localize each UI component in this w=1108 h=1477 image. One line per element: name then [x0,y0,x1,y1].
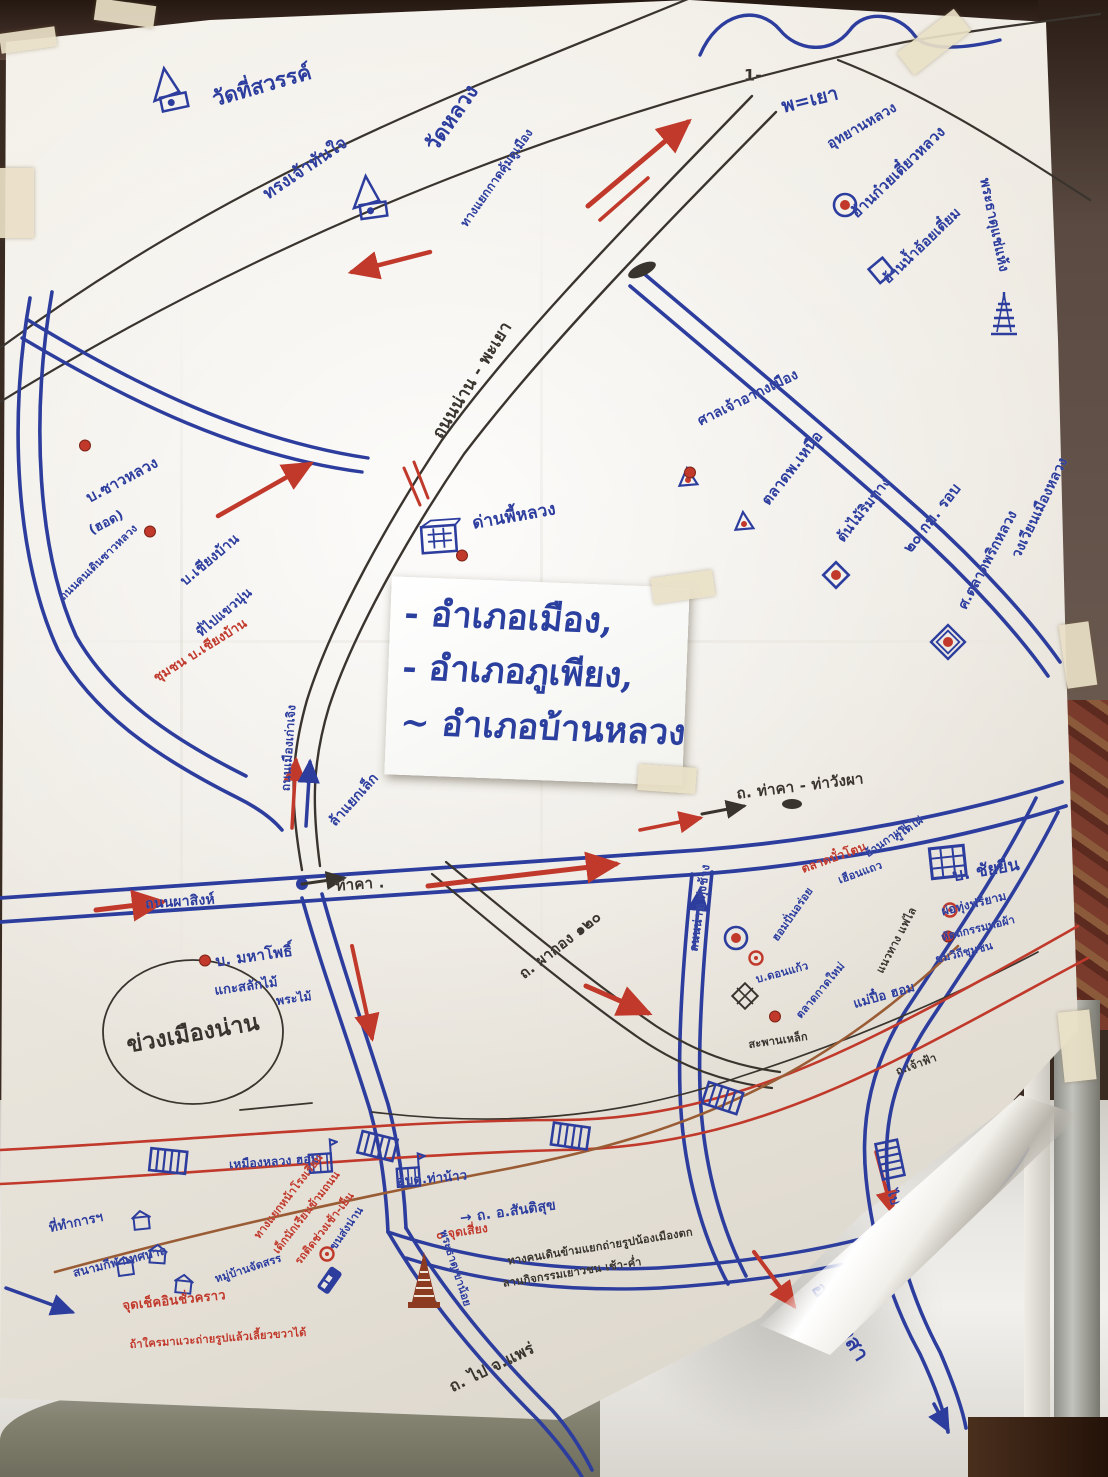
map-label: บ.เชียงบ้าน [175,529,244,592]
map-label: วัดที่สวรรค์ [208,56,315,116]
tape [0,168,34,238]
map-label: ท่าคา . [335,870,385,897]
map-label: ข่วงเมืองน่าน [124,1005,263,1064]
map-label: ล้าแยกเล็ก [324,768,384,831]
map-label: → ถ. อ.สันติสุข [459,1194,558,1229]
map-label: ศ.ตลาดพริกหลวง [953,507,1024,614]
map-label: หมู่บ้านจัดสรร [212,1249,283,1288]
map-label: ถ.เจ้าฟ้า [893,1048,939,1079]
district-name: ~ อำเภอบ้านหลวง [397,695,681,760]
districts-sign: - อำเภอเมือง, - อำเภอภูเพียง, ~ อำเภอบ้า… [384,576,689,785]
map-label: ทางแยกกาดคุ้มดูเมือง [456,125,538,231]
map-label: บ. มหาโพธิ์ [214,939,294,974]
map-label: วงเวียนเมืองหลวง [1006,454,1074,562]
map-label: ต้นไม้ริมทาง [832,473,897,548]
map-label: แม่ปื๋อ ฮอม [851,976,918,1014]
map-label: ด่านพี้หลวง [470,495,558,536]
map-label: ถนนน่าน ทุ่งช้าง [684,863,715,953]
map-label: สะพานเหล็ก [747,1027,809,1053]
map-label: ถ. ท่าคา - ท่าวังผา [735,766,865,805]
map-label: ตลาดพ.เหนือ [755,426,829,511]
district-name: - อำเภอภูเพียง, [399,641,683,706]
map-label: ฮ้านน้ำอ้อยเตี๋ยม [878,203,967,290]
map-label: พระไม้ [275,987,313,1011]
map-label: ๒๐ กม. รอบ [897,478,967,558]
map-label: พระธาตุแช่แห้ง [973,176,1014,274]
map-label: ศาลเจ้าอากงเมือง [694,364,802,432]
map-label: ถ. ไป จ.แพร่ [445,1337,539,1400]
map-label: ถนนน่าน - พะเยา [425,316,519,444]
map-label: ที่ทำการฯ [47,1206,105,1238]
map-label: ถ. ผากอง ๑๒๐ [514,905,607,985]
map-label: 1- [744,66,762,85]
photo-of-hand-drawn-map: วัดที่สวรรค์ทรงเจ้าทันใจวัดหลวงทางแยกกาด… [0,0,1108,1477]
map-label: บ.ซาวหลวง [82,451,163,509]
map-label: ถ้าใครมาแวะถ่ายรูปแล้วเลี้ยวขวาได้ [129,1323,307,1353]
map-label: บ. ชัยยืน [950,851,1021,889]
map-label: วัดหลวง [417,78,487,159]
map-label: จุดเช็คอินชั่วคราว [121,1284,226,1316]
map-label: บ.ดอนแก้ว [754,956,811,987]
map-label: ฮอมปั่นอร่อย [767,883,818,944]
map-label: อบต.ท่าน้าว [396,1164,468,1191]
map-label: แกะสลักไม้ [213,971,279,1001]
map-label: พ=เยา [778,78,841,121]
map-label: ถนนผาสิงห์ [144,889,215,916]
tape [637,764,697,794]
map-label: ถนนเมืองเก่าเจิง [277,704,302,792]
map-label: สนามกีฬาเทศบาล [71,1241,169,1283]
map-label: แนวทาง แฟไล [871,904,921,977]
map-label: ทรงเจ้าทันใจ [257,130,353,207]
